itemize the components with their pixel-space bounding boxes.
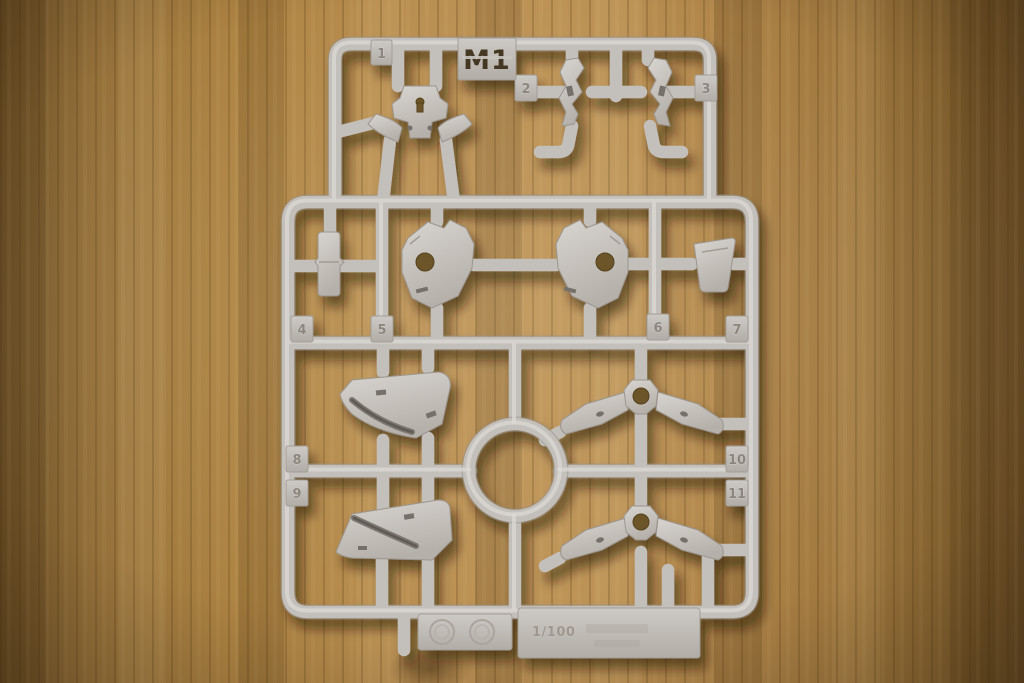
part-7-bucket-piece	[694, 238, 735, 292]
part-tag-8: 8	[286, 446, 308, 472]
part-tag-7-number: 7	[732, 323, 741, 338]
part-1-backpack-piece	[368, 86, 472, 142]
part-5-chest-armor-left	[402, 220, 474, 308]
part-tag-5: 5	[371, 316, 393, 342]
part-tag-6: 6	[647, 314, 669, 340]
photo-scene: 1 2 3 4 5	[0, 0, 1024, 683]
part-2-frame-strut-left	[559, 58, 584, 126]
bottom-info-plates: 1/100	[418, 608, 700, 658]
embossed-title-bar	[586, 624, 648, 633]
part-tag-8-number: 8	[292, 453, 301, 468]
part-tag-9: 9	[286, 480, 308, 506]
part-tag-1-number: 1	[377, 47, 386, 62]
part-tag-4: 4	[291, 316, 313, 342]
part-tag-2: 2	[515, 75, 537, 101]
part-tag-5-number: 5	[377, 323, 386, 338]
part-tag-4-number: 4	[297, 323, 306, 338]
part-tag-3-number: 3	[701, 82, 710, 97]
part-tag-1: 1	[371, 40, 392, 65]
part-tag-7: 7	[726, 316, 748, 342]
runner-tubes	[287, 43, 752, 651]
sprue-photo-canvas: 1 2 3 4 5	[0, 0, 1024, 683]
scale-text: 1/100	[532, 625, 575, 640]
part-6-chest-armor-right	[556, 220, 628, 308]
gate-label-text: M1	[463, 45, 511, 76]
part-tag-3: 3	[695, 75, 717, 101]
runner-tube-base	[288, 44, 752, 650]
kit-title-plate: 1/100	[518, 608, 700, 658]
part-3-frame-strut-right	[648, 58, 673, 126]
part-tag-9-number: 9	[292, 487, 301, 502]
part-9-skirt-armor-lower	[336, 500, 452, 560]
material-mark-plate	[418, 614, 512, 650]
center-ring-highlight	[468, 423, 560, 515]
runner-sprue: 1 2 3 4 5	[286, 38, 752, 658]
part-tag-10-number: 10	[728, 453, 746, 468]
gate-label-plate: M1	[458, 38, 516, 80]
part-8-skirt-armor-upper	[340, 372, 450, 438]
part-tag-6-number: 6	[653, 321, 662, 336]
embossed-subtitle-bar	[594, 640, 640, 647]
part-tag-2-number: 2	[521, 82, 530, 97]
part-4-connector-block	[315, 232, 344, 296]
part-tag-10: 10	[726, 446, 748, 472]
part-tag-11: 11	[726, 480, 748, 506]
part-number-tags: 1 2 3 4 5	[286, 40, 748, 506]
stencil-bridge	[462, 56, 512, 59]
part-tag-11-number: 11	[728, 487, 746, 502]
